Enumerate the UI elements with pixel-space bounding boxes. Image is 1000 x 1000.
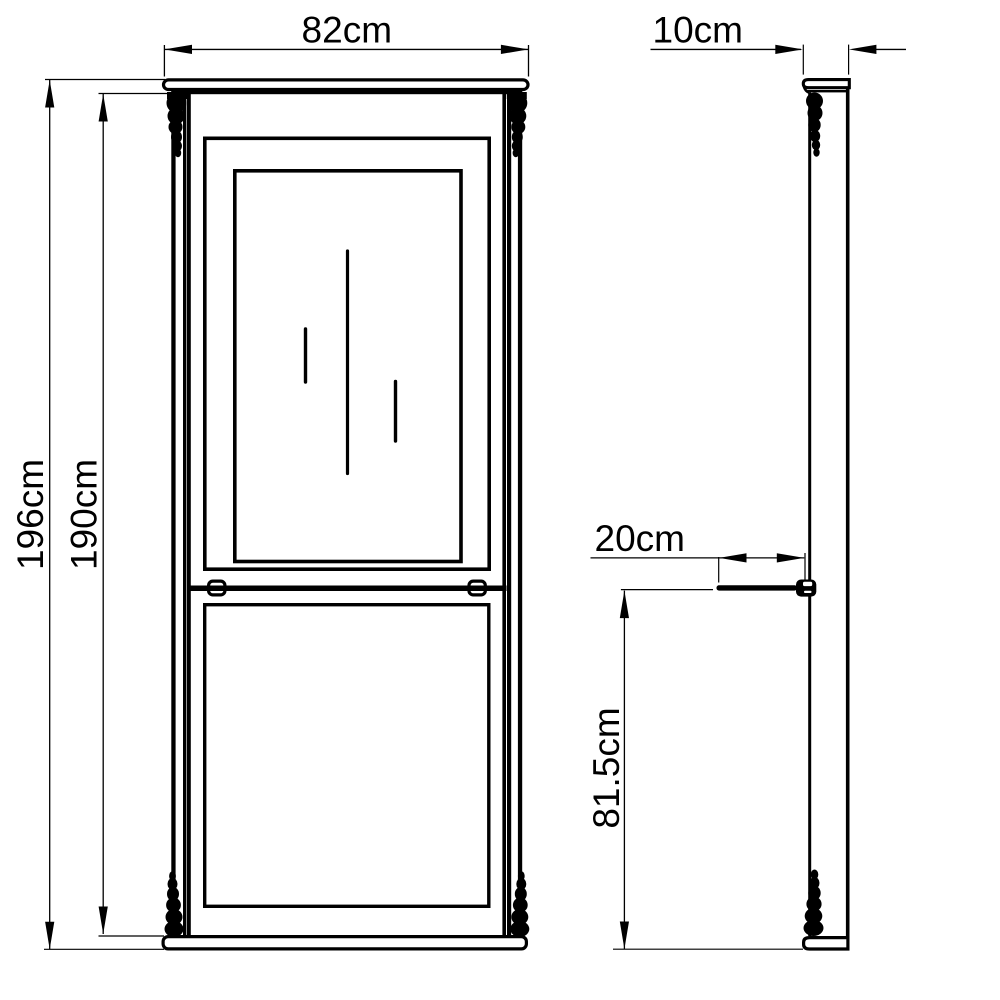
svg-text:196cm: 196cm: [10, 459, 51, 570]
svg-text:10cm: 10cm: [653, 10, 743, 51]
svg-text:81.5cm: 81.5cm: [586, 707, 627, 828]
svg-text:190cm: 190cm: [64, 459, 105, 570]
svg-text:82cm: 82cm: [302, 10, 392, 51]
svg-text:20cm: 20cm: [595, 518, 685, 559]
